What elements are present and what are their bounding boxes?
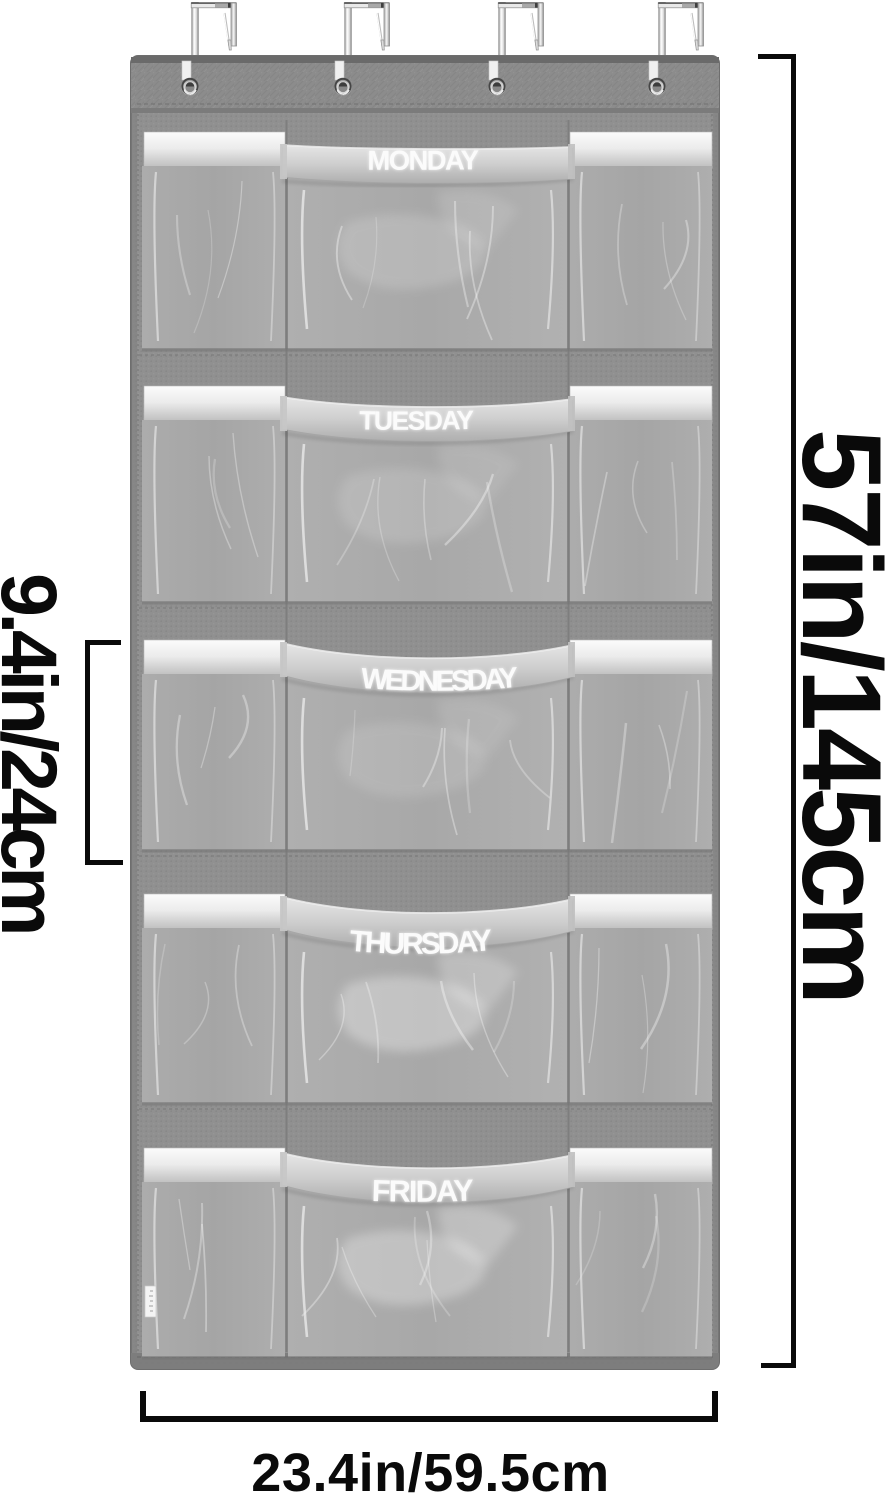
svg-text:TUESDAY: TUESDAY xyxy=(359,405,475,436)
svg-text:23.4in/59.5cm: 23.4in/59.5cm xyxy=(251,1443,609,1500)
svg-text:9.4in/24cm: 9.4in/24cm xyxy=(0,573,74,932)
svg-text:WEDNESDAY: WEDNESDAY xyxy=(360,662,519,698)
svg-text:MONDAY: MONDAY xyxy=(367,144,478,176)
svg-text:FRIDAY: FRIDAY xyxy=(371,1173,474,1208)
